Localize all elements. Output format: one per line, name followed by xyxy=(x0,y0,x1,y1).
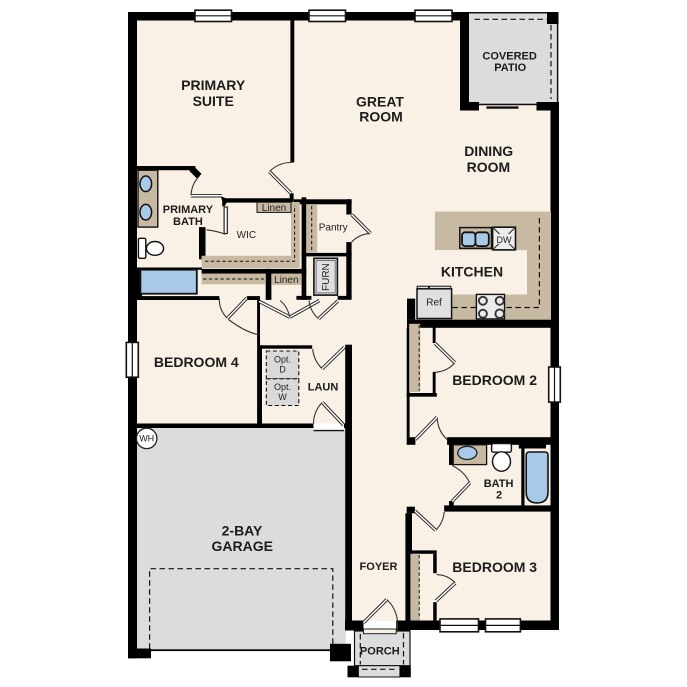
svg-text:PORCH: PORCH xyxy=(360,645,400,657)
svg-text:BATH: BATH xyxy=(173,216,203,228)
svg-text:WIC: WIC xyxy=(237,230,256,241)
svg-text:GREAT: GREAT xyxy=(356,93,404,109)
svg-text:DINING: DINING xyxy=(464,143,513,159)
svg-text:Linen: Linen xyxy=(262,203,286,214)
svg-text:Ref: Ref xyxy=(426,298,442,309)
svg-text:Opt.: Opt. xyxy=(274,382,291,392)
svg-text:BEDROOM 4: BEDROOM 4 xyxy=(154,354,239,370)
svg-text:WH: WH xyxy=(139,433,154,443)
svg-text:BEDROOM 2: BEDROOM 2 xyxy=(452,372,537,388)
svg-text:W: W xyxy=(278,392,287,402)
svg-text:Pantry: Pantry xyxy=(319,223,348,234)
svg-text:ROOM: ROOM xyxy=(467,159,511,175)
svg-text:2-BAY: 2-BAY xyxy=(222,522,263,538)
svg-text:Linen: Linen xyxy=(274,275,298,286)
svg-text:BEDROOM 3: BEDROOM 3 xyxy=(452,559,537,575)
svg-text:BATH: BATH xyxy=(484,478,514,490)
svg-text:COVERED: COVERED xyxy=(482,50,536,62)
svg-text:GARAGE: GARAGE xyxy=(211,538,272,554)
svg-text:PATIO: PATIO xyxy=(494,62,526,74)
svg-text:2: 2 xyxy=(496,489,502,501)
svg-text:D: D xyxy=(279,365,286,375)
svg-text:DW: DW xyxy=(497,235,512,245)
svg-text:PRIMARY: PRIMARY xyxy=(163,204,214,216)
svg-text:FURN: FURN xyxy=(321,263,332,291)
svg-text:SUITE: SUITE xyxy=(193,93,234,109)
svg-text:FOYER: FOYER xyxy=(360,561,398,573)
svg-text:LAUN: LAUN xyxy=(308,381,339,393)
svg-text:ROOM: ROOM xyxy=(359,109,403,125)
svg-text:KITCHEN: KITCHEN xyxy=(441,263,503,279)
svg-text:PRIMARY: PRIMARY xyxy=(181,77,246,93)
svg-text:Opt.: Opt. xyxy=(274,355,291,365)
